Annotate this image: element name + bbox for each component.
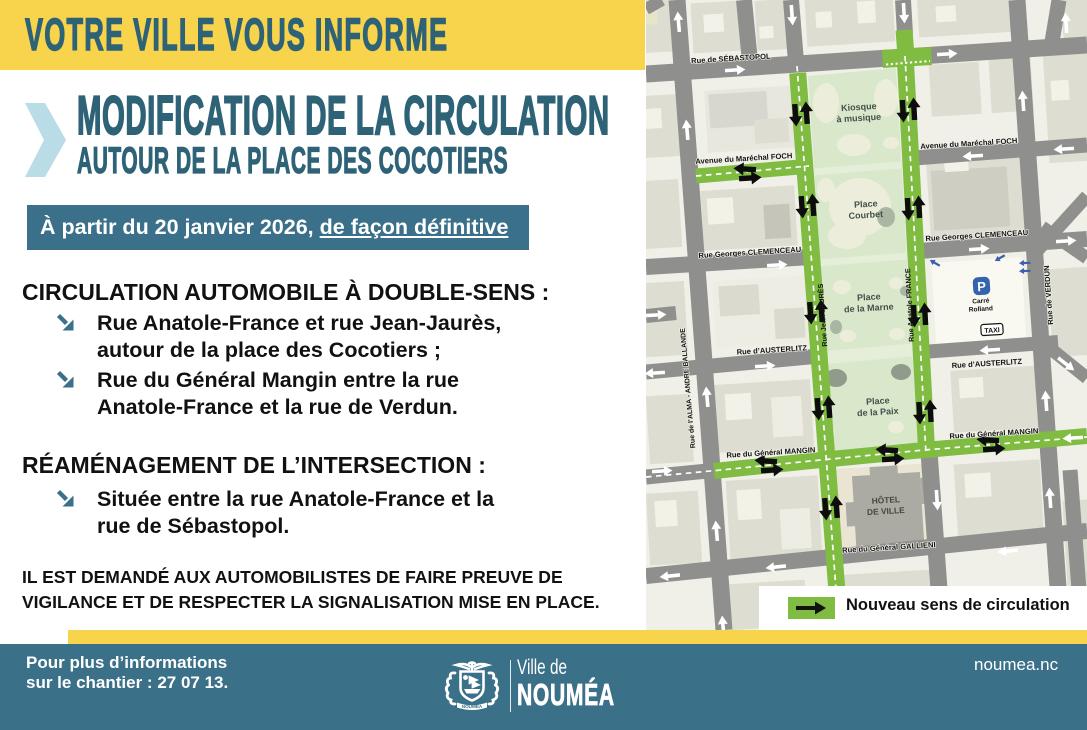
- svg-text:Rolland: Rolland: [969, 305, 994, 313]
- svg-text:Place: Place: [857, 291, 881, 302]
- svg-text:NOUMEA: NOUMEA: [462, 704, 483, 709]
- svg-text:Place: Place: [866, 395, 890, 406]
- svg-text:Courbet: Courbet: [848, 209, 883, 221]
- svg-text:Carré: Carré: [972, 297, 990, 305]
- svg-text:Place: Place: [854, 198, 878, 209]
- svg-text:TAXI: TAXI: [984, 327, 1000, 335]
- svg-text:P: P: [977, 279, 987, 295]
- svg-text:HÔTEL: HÔTEL: [871, 493, 900, 506]
